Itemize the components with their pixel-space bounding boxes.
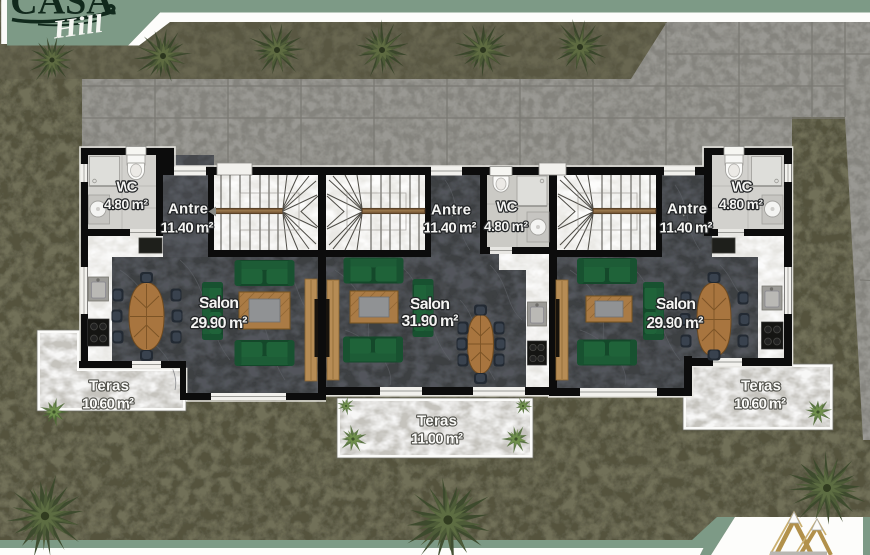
svg-text:Antre: Antre <box>667 201 707 218</box>
svg-text:10.60 m²: 10.60 m² <box>82 396 134 413</box>
svg-text:WC: WC <box>117 179 138 196</box>
svg-text:29.90 m²: 29.90 m² <box>647 315 704 332</box>
svg-text:WC: WC <box>732 179 753 196</box>
svg-text:11.40 m²: 11.40 m² <box>424 220 477 237</box>
svg-text:Salon: Salon <box>656 296 696 313</box>
svg-text:29.90 m²: 29.90 m² <box>191 315 248 332</box>
svg-text:10.60 m²: 10.60 m² <box>734 396 786 413</box>
svg-text:11.00 m²: 11.00 m² <box>411 431 463 448</box>
svg-text:Teras: Teras <box>89 378 129 395</box>
svg-text:Salon: Salon <box>410 296 450 313</box>
svg-text:4.80 m²: 4.80 m² <box>719 196 763 212</box>
svg-text:11.40 m²: 11.40 m² <box>161 220 214 237</box>
svg-text:Teras: Teras <box>741 378 781 395</box>
svg-text:Antre: Antre <box>168 201 208 218</box>
svg-text:11.40 m²: 11.40 m² <box>660 220 713 237</box>
svg-text:Teras: Teras <box>417 413 457 430</box>
svg-text:4.80 m²: 4.80 m² <box>104 196 148 212</box>
svg-text:WC: WC <box>497 199 518 216</box>
svg-text:Antre: Antre <box>431 202 471 219</box>
svg-text:Salon: Salon <box>199 295 239 312</box>
svg-text:4.80 m²: 4.80 m² <box>484 218 528 234</box>
svg-text:31.90 m²: 31.90 m² <box>402 313 459 330</box>
